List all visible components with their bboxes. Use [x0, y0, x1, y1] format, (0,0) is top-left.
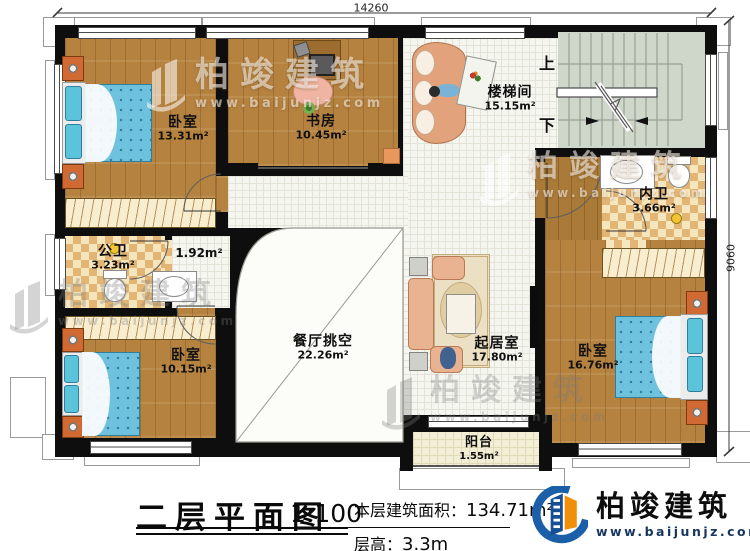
window: [425, 27, 525, 39]
stairs-down-label: 下: [539, 112, 555, 136]
toilet-tank-icon: [667, 156, 691, 165]
pillow-icon: [65, 86, 82, 121]
nightstand-icon: [686, 291, 708, 316]
brand-name: 柏竣建筑: [596, 492, 750, 521]
pillow-icon: [687, 356, 703, 392]
computer-monitor-icon: [309, 54, 335, 76]
window: [578, 443, 682, 456]
pillow-icon: [687, 318, 703, 354]
room-label-public-bath: 公卫3.23m²: [91, 244, 134, 273]
pillow-icon: [64, 385, 79, 413]
stairs-up-label: 上: [539, 50, 555, 74]
nightstand-icon: [62, 56, 84, 81]
window: [705, 157, 717, 219]
room-label-study: 书房10.45m²: [295, 114, 346, 143]
dimension-top: 14260: [354, 2, 389, 15]
room-label-living: 起居室17.80m²: [471, 336, 522, 365]
divider-line: [348, 527, 510, 528]
brand-logo-icon: [532, 486, 588, 544]
room-label-dining-void: 餐厅挑空22.26m²: [293, 334, 353, 363]
window: [54, 238, 66, 290]
plant-icon: [303, 102, 315, 114]
sofa-cushion-icon: [415, 109, 435, 135]
drawing-scale: 1:100: [290, 499, 362, 528]
window: [90, 441, 192, 454]
person-icon: [440, 347, 456, 369]
window: [206, 27, 369, 39]
room-label-bedroom-bl: 卧室10.15m²: [160, 348, 211, 377]
nightstand-icon: [686, 400, 708, 425]
person-icon: [437, 84, 459, 97]
brand-logo: 柏竣建筑 www.baijunjz.com: [532, 486, 750, 544]
armchair-icon: [432, 256, 465, 280]
tv-icon: [530, 286, 539, 348]
sink-icon: [610, 160, 643, 184]
side-table-icon: [409, 352, 428, 371]
dimension-right: 9060: [725, 244, 738, 272]
bench-icon: [383, 148, 400, 164]
flowers-icon: [468, 70, 482, 84]
sofa-cushion-icon: [415, 50, 435, 76]
toilet-icon: [668, 164, 690, 188]
person-head-icon: [429, 86, 440, 97]
room-label-bedroom-tl: 卧室13.31m²: [157, 115, 208, 144]
room-label-hallway: 1.92m²: [175, 247, 222, 261]
side-table-icon: [409, 257, 428, 276]
nightstand-icon: [62, 416, 84, 438]
sink-icon: [159, 276, 189, 297]
balcony-sliding-door: [428, 416, 529, 428]
title-underline: [136, 533, 348, 535]
pillow-icon: [64, 355, 79, 383]
room-label-bedroom-r: 卧室16.76m²: [567, 344, 618, 373]
toilet-icon: [104, 278, 126, 302]
title-underline: [136, 527, 348, 529]
window: [705, 54, 717, 126]
nightstand-icon: [62, 164, 84, 189]
sofa-icon: [408, 278, 434, 350]
pillow-icon: [65, 124, 82, 159]
window: [78, 27, 196, 39]
nightstand-icon: [62, 328, 84, 352]
floor-height-text: 层高：3.3m: [354, 531, 448, 551]
coffee-table-icon: [446, 294, 476, 334]
room-label-balcony: 阳台1.55m²: [459, 436, 498, 462]
room-label-private-bath: 内卫3.66m²: [632, 187, 675, 216]
brand-website: www.baijunjz.com: [596, 524, 750, 539]
room-label-stairwell: 楼梯间15.15m²: [484, 85, 535, 114]
floorplan-canvas: 柏竣建筑 www.baijunjz.com 柏竣建筑 www.baijunjz.…: [0, 0, 750, 551]
floor-area-text: 本层建筑面积：134.71m²: [354, 497, 554, 521]
